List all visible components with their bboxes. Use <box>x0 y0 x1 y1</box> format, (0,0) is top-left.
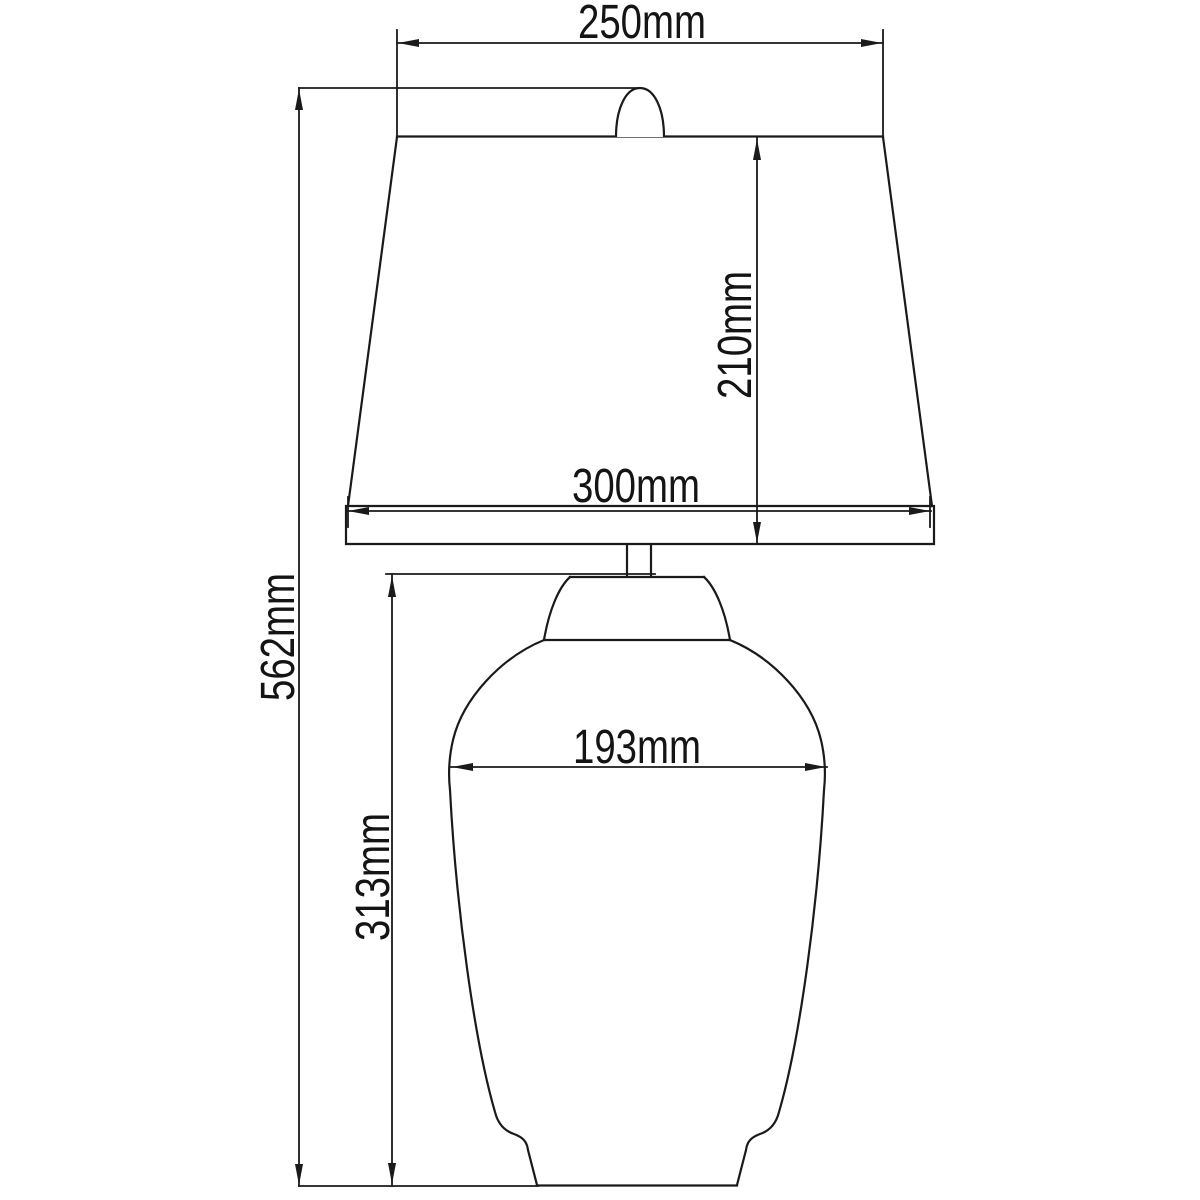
arrowhead-right-icon <box>861 39 882 47</box>
arrowhead-up-icon <box>388 576 396 597</box>
arrowhead-up-icon <box>753 139 761 160</box>
shade-right-edge <box>883 137 932 506</box>
shade-left-edge <box>348 137 397 506</box>
arrowhead-left-icon <box>398 39 419 47</box>
dimension-body-height <box>386 574 655 1186</box>
vase-cap-left <box>544 577 570 640</box>
arrowhead-down-icon <box>295 1164 303 1185</box>
arrowhead-left-icon <box>452 763 473 771</box>
lamp-body <box>449 545 825 1186</box>
technical-drawing-canvas <box>0 0 1200 1200</box>
dimension-overall-height <box>295 88 641 1186</box>
finial-dome <box>616 88 664 137</box>
arrowhead-up-icon <box>295 89 303 110</box>
vase-body-left-edge <box>449 640 544 1185</box>
vase-cap-right <box>704 577 730 640</box>
arrowhead-down-icon <box>388 1163 396 1184</box>
dimension-label-body-width: 193mm <box>573 724 701 772</box>
arrowhead-right-icon <box>909 507 930 515</box>
dimension-label-shade-top-width: 250mm <box>578 0 706 47</box>
vase-body-right-edge <box>730 640 825 1185</box>
dimension-label-shade-bottom-width: 300mm <box>572 463 700 511</box>
arrowhead-left-icon <box>348 507 369 515</box>
dimension-label-overall-height: 562mm <box>255 573 303 701</box>
arrowhead-right-icon <box>805 763 826 771</box>
dimension-label-body-height: 313mm <box>350 813 398 941</box>
dimension-label-shade-height: 210mm <box>712 271 760 399</box>
lamp-dimension-drawing: 250mm 210mm 300mm 562mm 193mm 313mm <box>0 0 1200 1200</box>
arrowhead-down-icon <box>753 522 761 543</box>
